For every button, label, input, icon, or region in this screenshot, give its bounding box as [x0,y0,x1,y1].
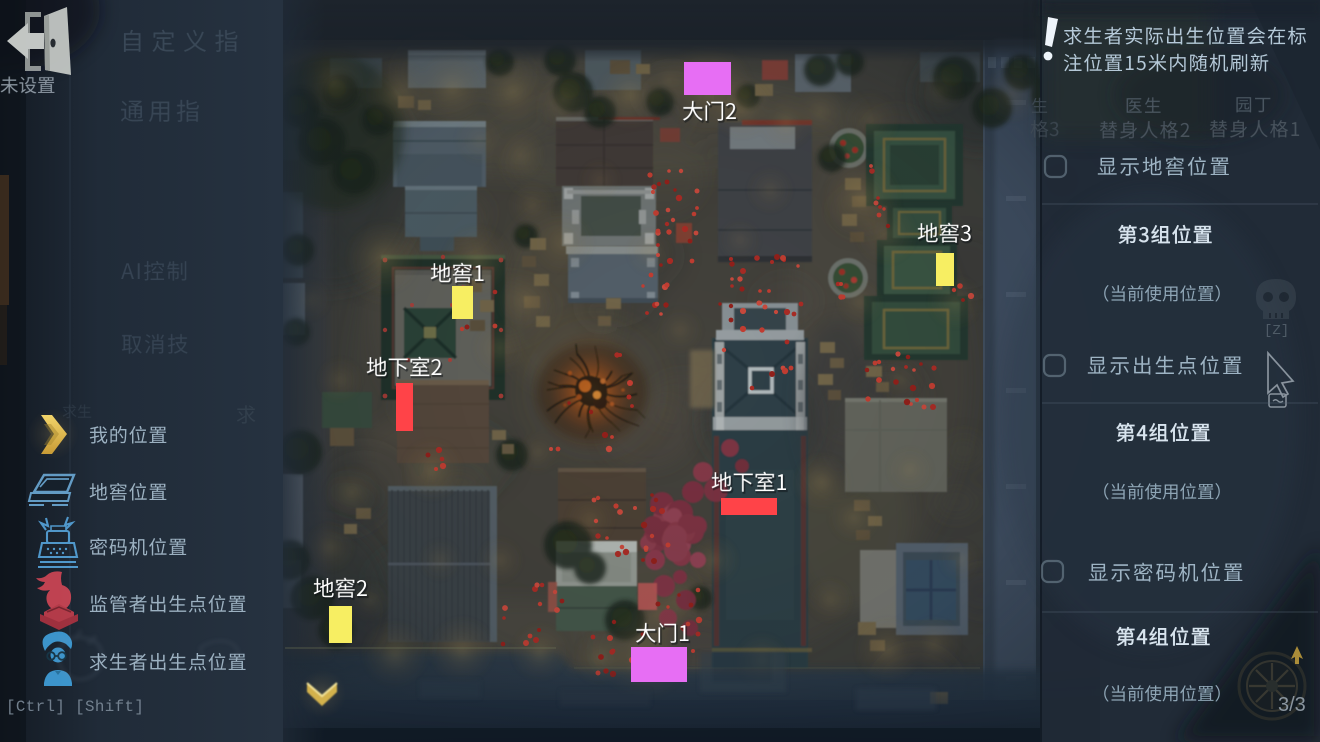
svg-text:[Ctrl] [Shift]: [Ctrl] [Shift] [6,698,144,716]
svg-text:[Z]: [Z] [1264,323,1289,339]
svg-text:3/3: 3/3 [1278,694,1306,716]
